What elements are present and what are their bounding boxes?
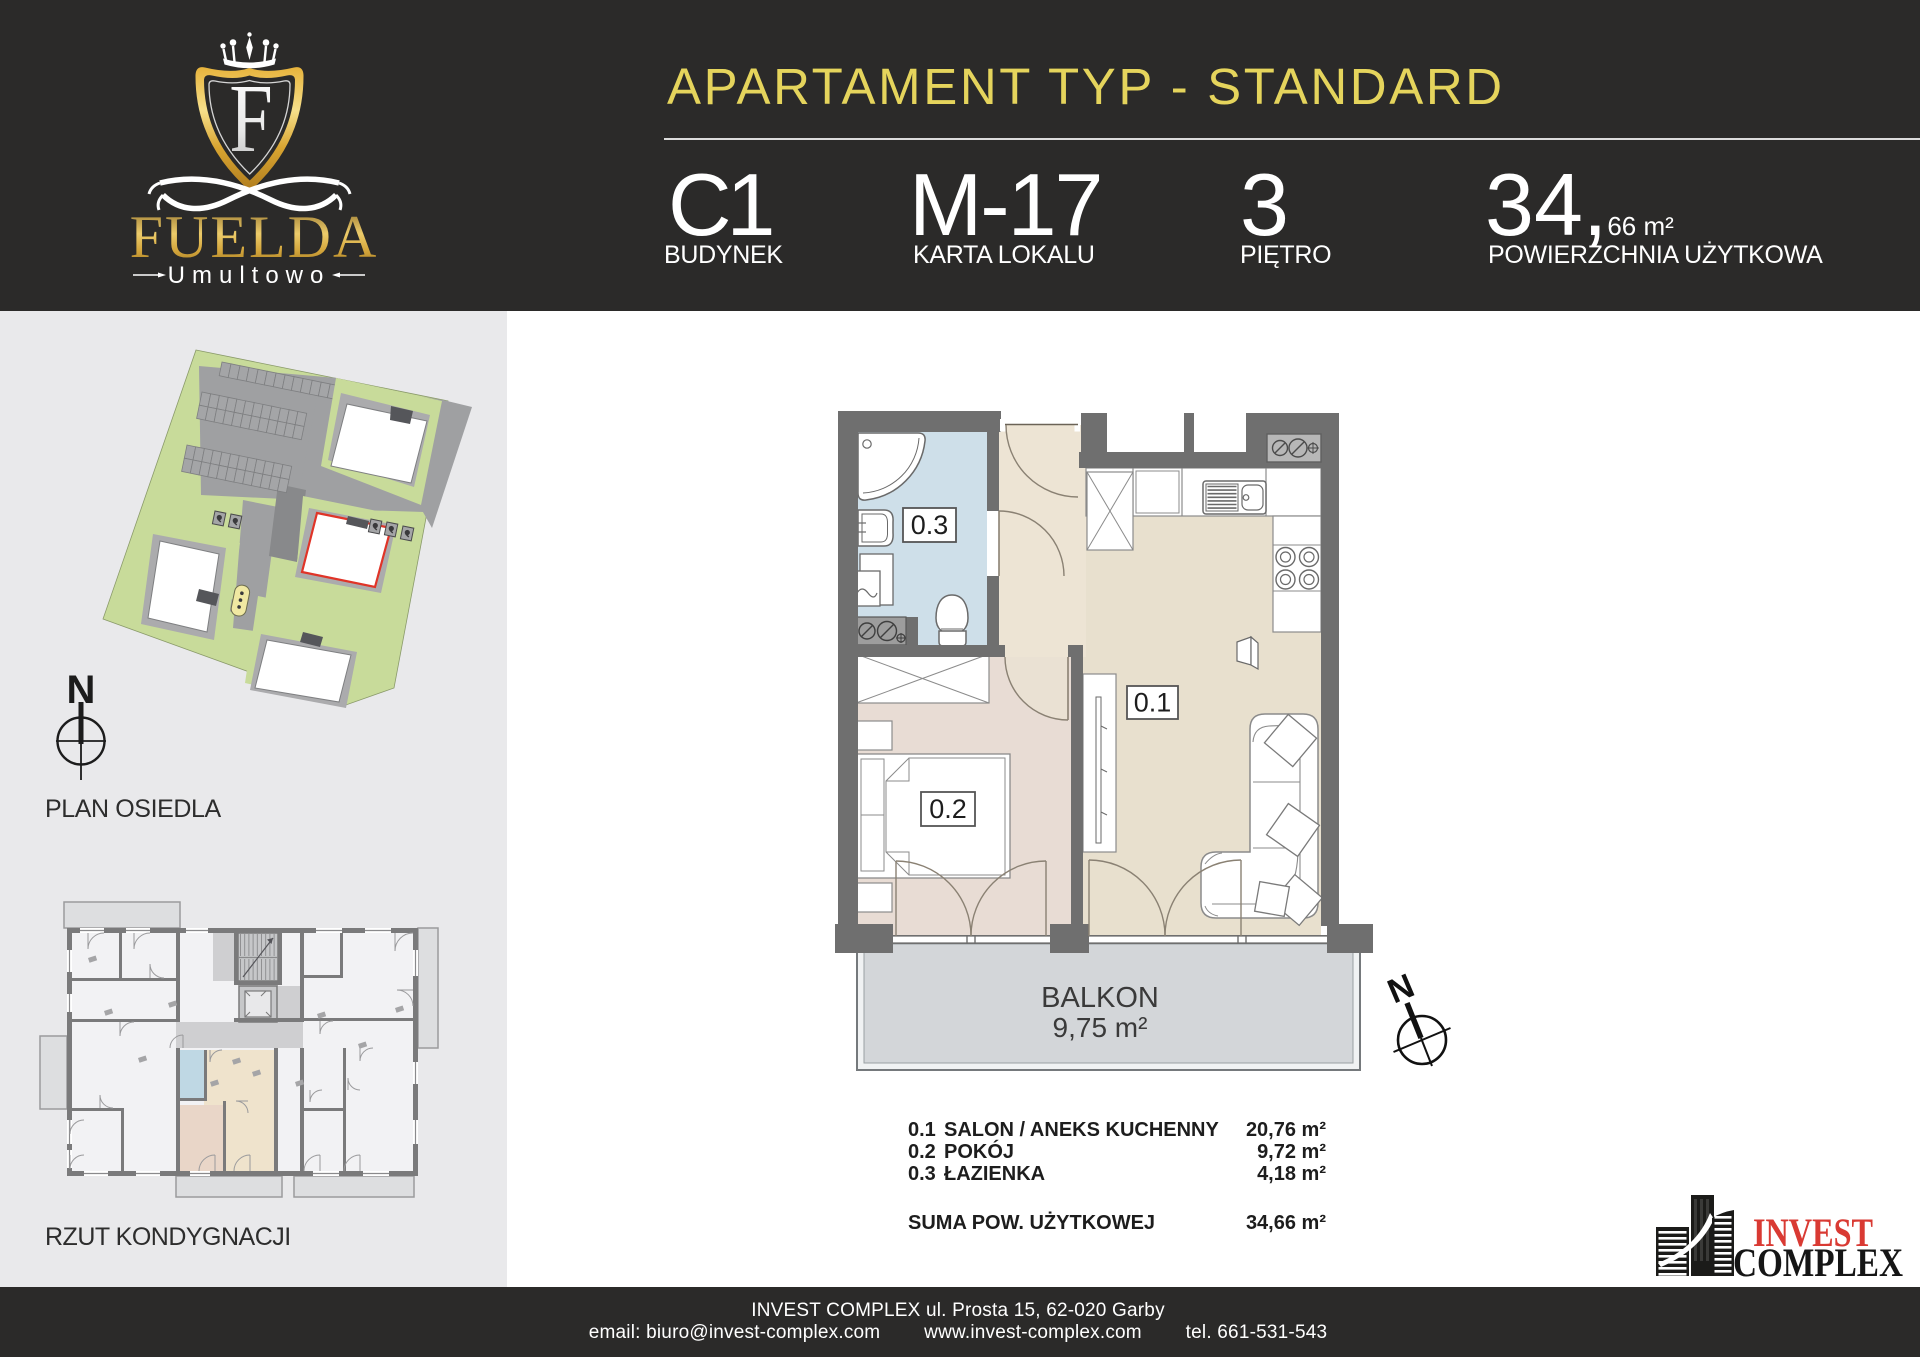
svg-text:9,75 m²: 9,75 m² (1053, 1012, 1148, 1043)
svg-text:BALKON: BALKON (1041, 982, 1159, 1014)
svg-text:0.2: 0.2 (929, 794, 967, 824)
svg-text:N: N (1382, 967, 1419, 1012)
svg-text:FUELDA: FUELDA (130, 204, 379, 270)
svg-text:N: N (67, 668, 96, 712)
svg-text:0.3: 0.3 (911, 510, 949, 540)
svg-text:COMPLEX: COMPLEX (1733, 1240, 1903, 1282)
svg-text:0.1: 0.1 (1134, 688, 1172, 718)
svg-text:F: F (229, 65, 273, 173)
svg-text:Umultowo: Umultowo (168, 262, 331, 289)
